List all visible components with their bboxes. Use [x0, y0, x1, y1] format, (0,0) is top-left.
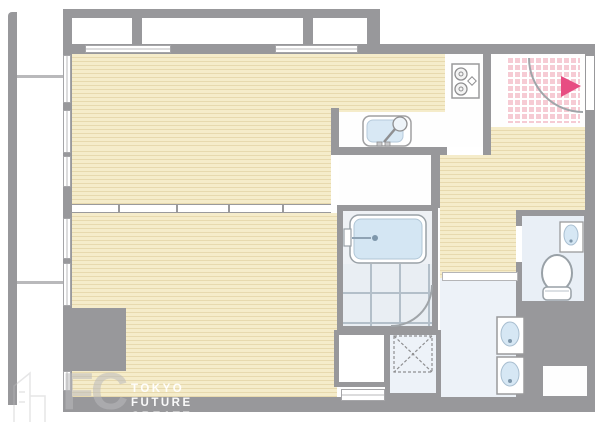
watermark-text: TOKYO FUTURE CREATE	[131, 382, 193, 424]
watermark-initials: FC	[62, 366, 125, 418]
watermark-line: FUTURE	[131, 396, 193, 410]
bath-door-icon	[391, 285, 432, 326]
toilet-icon	[542, 255, 572, 300]
bathtub-icon	[344, 215, 426, 263]
gas-stove-icon	[452, 64, 479, 98]
washing-machine-place-icon	[394, 336, 432, 372]
watermark-line: CREATE	[131, 410, 193, 424]
entrance-direction-icon	[561, 76, 581, 97]
fixtures-layer	[0, 0, 600, 425]
vanity-sink-icon	[497, 317, 524, 354]
hand-basin-icon	[560, 222, 583, 252]
kitchen-sink-icon	[363, 116, 411, 146]
watermark-logo-mark	[14, 373, 45, 422]
floor-plan: FC TOKYO FUTURE CREATE	[0, 0, 600, 425]
vanity-sink-icon	[497, 357, 524, 394]
watermark-line: TOKYO	[131, 382, 193, 396]
